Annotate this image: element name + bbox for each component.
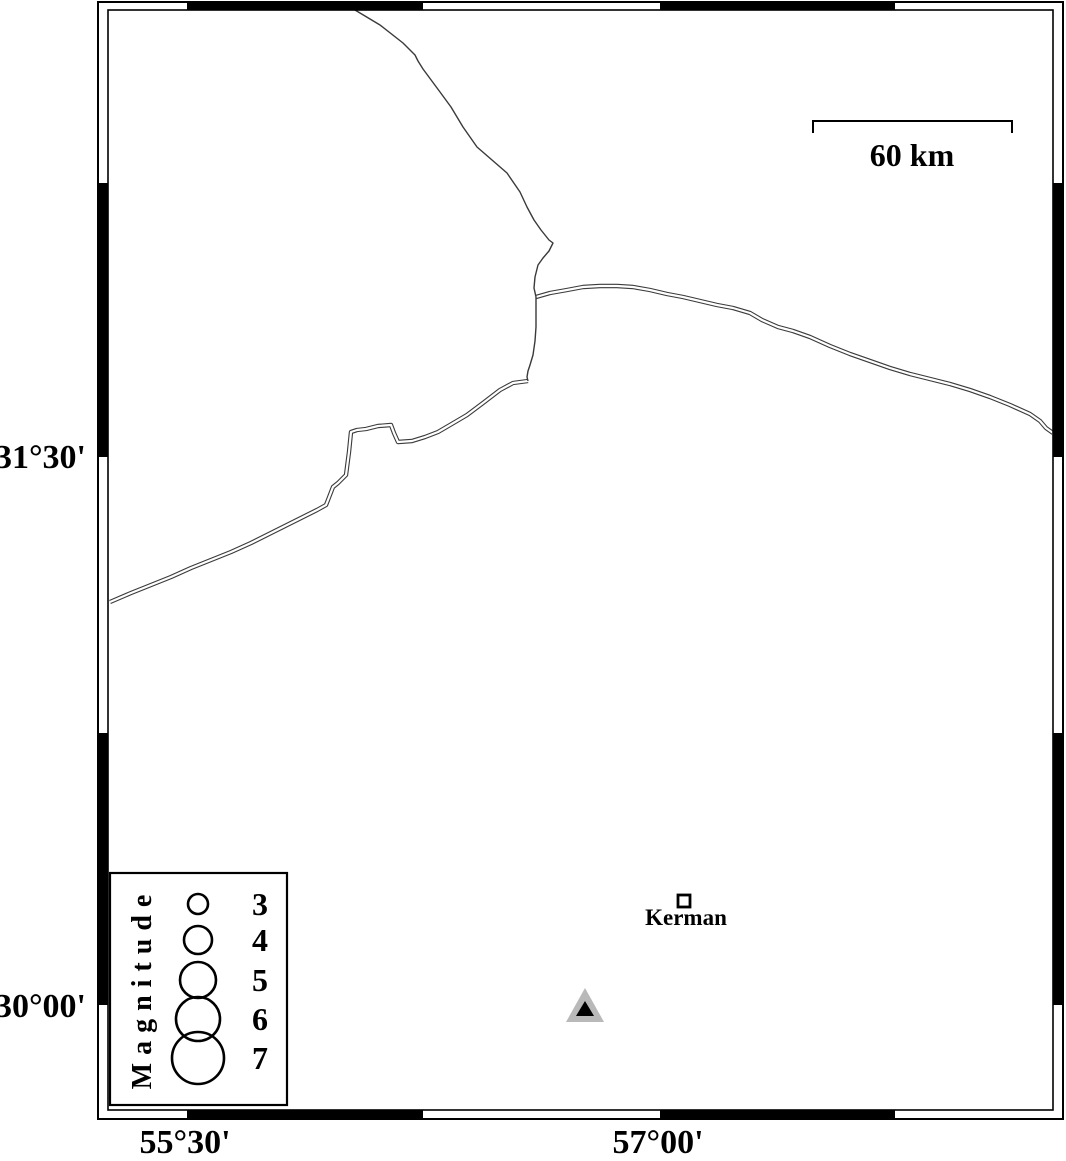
frame-tick-bottom [660,1110,895,1119]
frame-tick-right [1053,733,1063,1005]
map-svg: 34567 [0,0,1066,1159]
road-southwest [110,381,528,602]
city-label-kerman: Kerman [645,906,727,929]
lon-label-57-00: 57°00' [612,1126,703,1160]
frame-tick-left [98,183,108,457]
frame-tick-right [1053,183,1063,457]
frame-tick-top [660,2,895,10]
legend-magnitude-value: 3 [252,886,268,922]
legend-magnitude-value: 5 [252,962,268,998]
lat-label-30-00: 30°00' [0,990,86,1024]
lon-label-55-30: 55°30' [139,1126,230,1160]
map-figure: { "map": { "lat_labels": [ {"text": "31\… [0,0,1066,1159]
frame-tick-top [187,2,423,10]
legend-magnitude-value: 7 [252,1040,268,1076]
legend-magnitude-value: 4 [252,922,268,958]
road-north [355,10,553,381]
legend-title-magnitude: Magnitude [129,887,157,1090]
scale-bar-bracket [813,121,1012,133]
lat-label-31-30: 31°30' [0,441,86,475]
frame-tick-bottom [187,1110,423,1119]
road-east [536,286,1053,433]
map-canvas: 34567 31°30' 30°00' 55°30' 57°00' 60 km … [0,0,1066,1159]
legend-magnitude-value: 6 [252,1001,268,1037]
station-triangle-marker [566,988,604,1022]
roads-layer [110,10,1053,602]
scale-bar-label: 60 km [870,139,954,171]
road-east-core [536,286,1053,433]
frame-tick-left [98,733,108,1005]
scale-bar [813,121,1012,133]
